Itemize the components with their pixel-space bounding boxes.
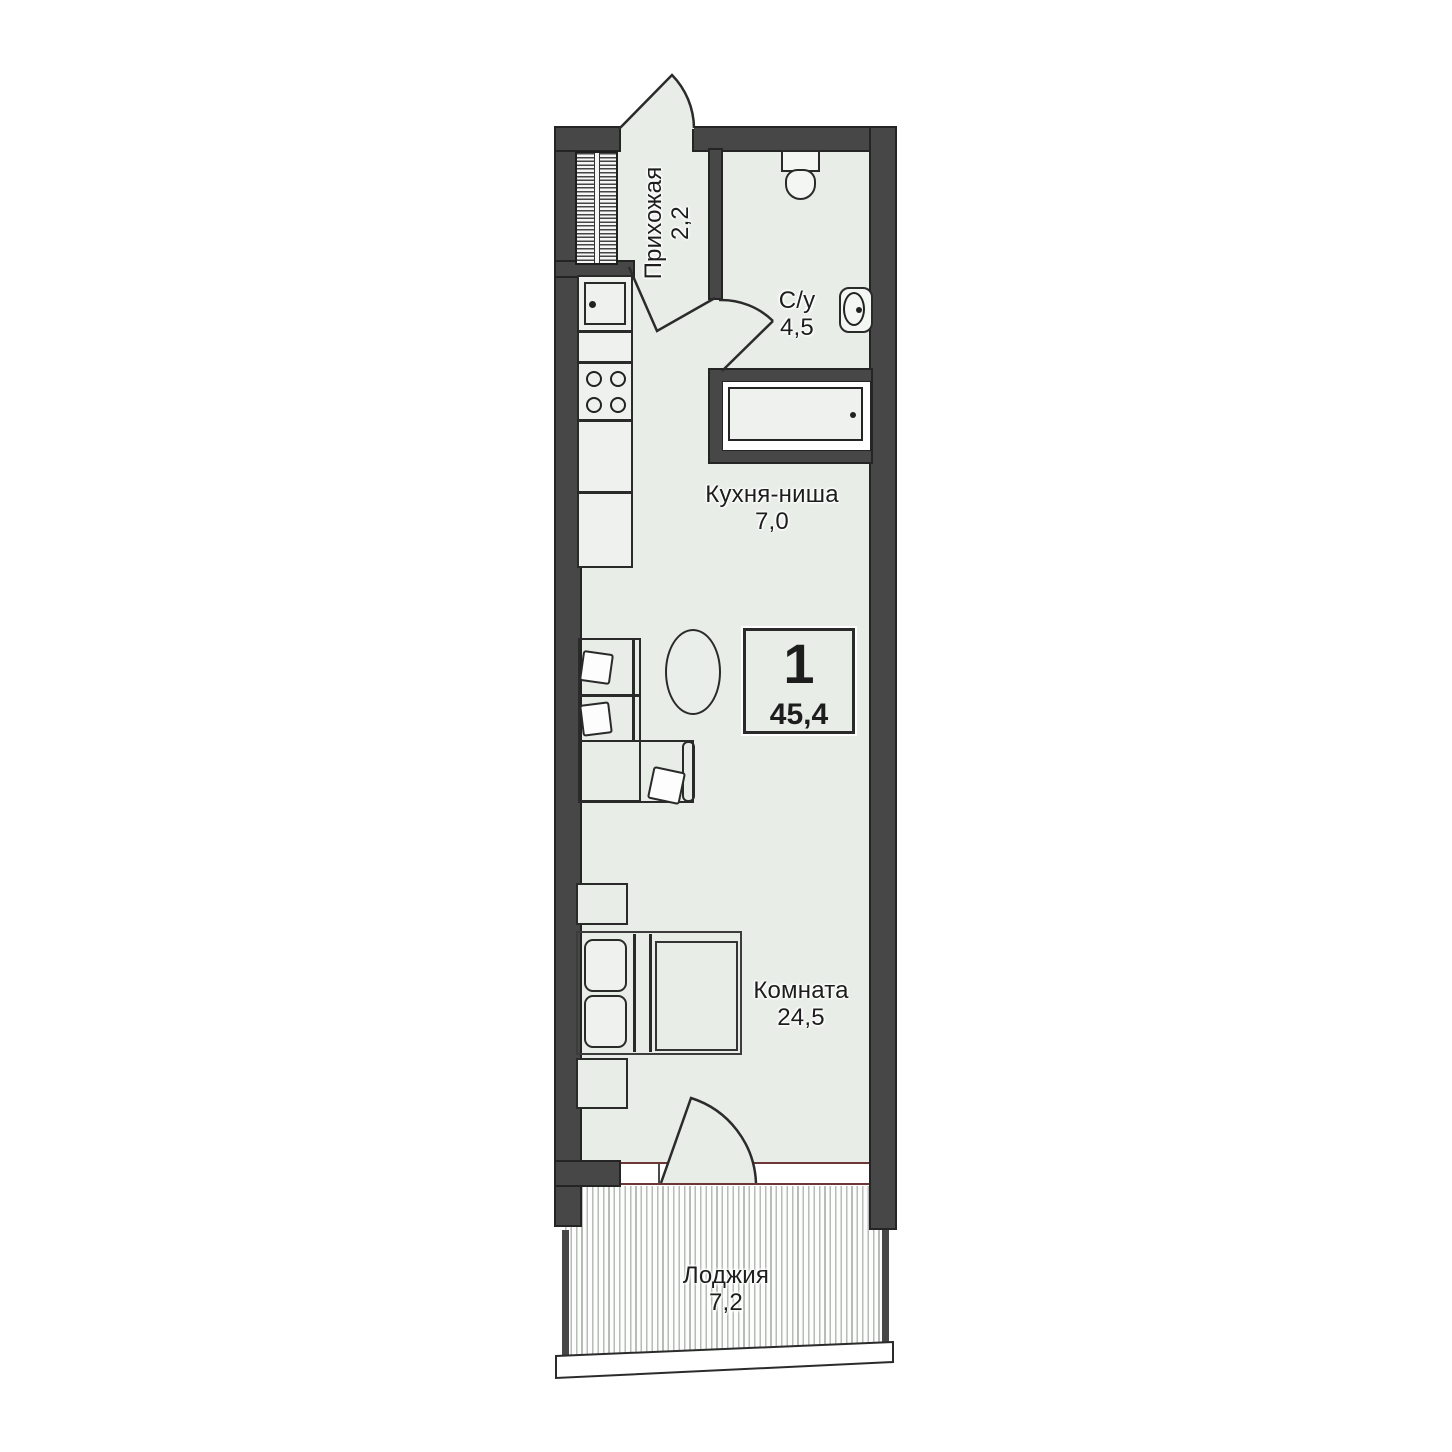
entry-door-swing: [619, 75, 694, 129]
sofa-pillow-1: [579, 650, 614, 685]
wall-top-right: [694, 128, 895, 150]
wardrobe: [575, 151, 618, 265]
living-area: 24,5: [753, 1004, 848, 1031]
bed-headboard-line-2: [649, 934, 652, 1052]
badge-total-area: 45,4: [770, 699, 828, 731]
room-label-loggia: Лоджия 7,2: [683, 1262, 769, 1316]
sofa-cushion-divider: [580, 694, 639, 697]
kitchen-sink-unit: [577, 275, 633, 332]
apartment-badge: 1 45,4: [743, 628, 855, 734]
sofa-pillow-3: [647, 766, 686, 805]
hallway-area: 2,2: [667, 167, 694, 280]
kitchen-faucet-dot: [589, 301, 596, 308]
wall-bottom-left: [556, 1162, 619, 1185]
bathtub-drain-dot: [850, 412, 856, 418]
wardrobe-rail: [594, 153, 600, 263]
living-name: Комната: [753, 977, 848, 1004]
nightstand-bottom: [576, 1058, 628, 1109]
badge-rooms-count: 1: [783, 635, 814, 693]
loggia-wall-right: [882, 1230, 889, 1348]
wall-bathroom: [710, 150, 721, 298]
toilet-bowl: [785, 169, 816, 200]
balcony-window-band: [619, 1162, 871, 1185]
nightstand-top: [576, 883, 628, 925]
bed-mattress: [655, 941, 738, 1051]
window-mullion-right: [749, 1164, 751, 1183]
floor-entry-gap: [619, 128, 694, 152]
floor-plan: Прихожая 2,2 С/у 4,5 Кухня-ниша 7,0 Комн…: [0, 0, 1452, 1452]
kitchen-stove: [577, 362, 633, 421]
wall-top-left: [556, 128, 619, 150]
kitchen-counter-b: [577, 420, 633, 493]
sofa-pillow-2: [579, 701, 613, 736]
room-label-hallway: Прихожая 2,2: [640, 167, 694, 280]
room-label-kitchen: Кухня-ниша 7,0: [705, 481, 838, 535]
loggia-name: Лоджия: [683, 1262, 769, 1289]
entry-door-swing-fill: [619, 75, 694, 129]
room-label-living: Комната 24,5: [753, 977, 848, 1031]
bathroom-name: С/у: [779, 287, 816, 314]
hallway-name: Прихожая: [640, 167, 667, 280]
bathroom-sink: [839, 287, 873, 333]
kitchen-counter-a: [577, 331, 633, 363]
kitchen-counter-c: [577, 492, 633, 568]
bed-pillow-2: [584, 995, 627, 1048]
loggia-area: 7,2: [683, 1289, 769, 1316]
kitchen-area: 7,0: [705, 508, 838, 535]
window-mullion-left: [658, 1164, 660, 1183]
bathtub: [722, 381, 871, 451]
bathroom-area: 4,5: [779, 314, 816, 341]
bed-headboard-line-1: [633, 934, 636, 1052]
coffee-table-oval: [665, 629, 721, 715]
sofa-back-edge: [632, 640, 635, 740]
loggia-wall-left: [562, 1230, 569, 1362]
room-label-bathroom: С/у 4,5: [779, 287, 816, 341]
kitchen-name: Кухня-ниша: [705, 481, 838, 508]
bed-pillow-1: [584, 939, 627, 992]
wall-right: [871, 128, 895, 1228]
